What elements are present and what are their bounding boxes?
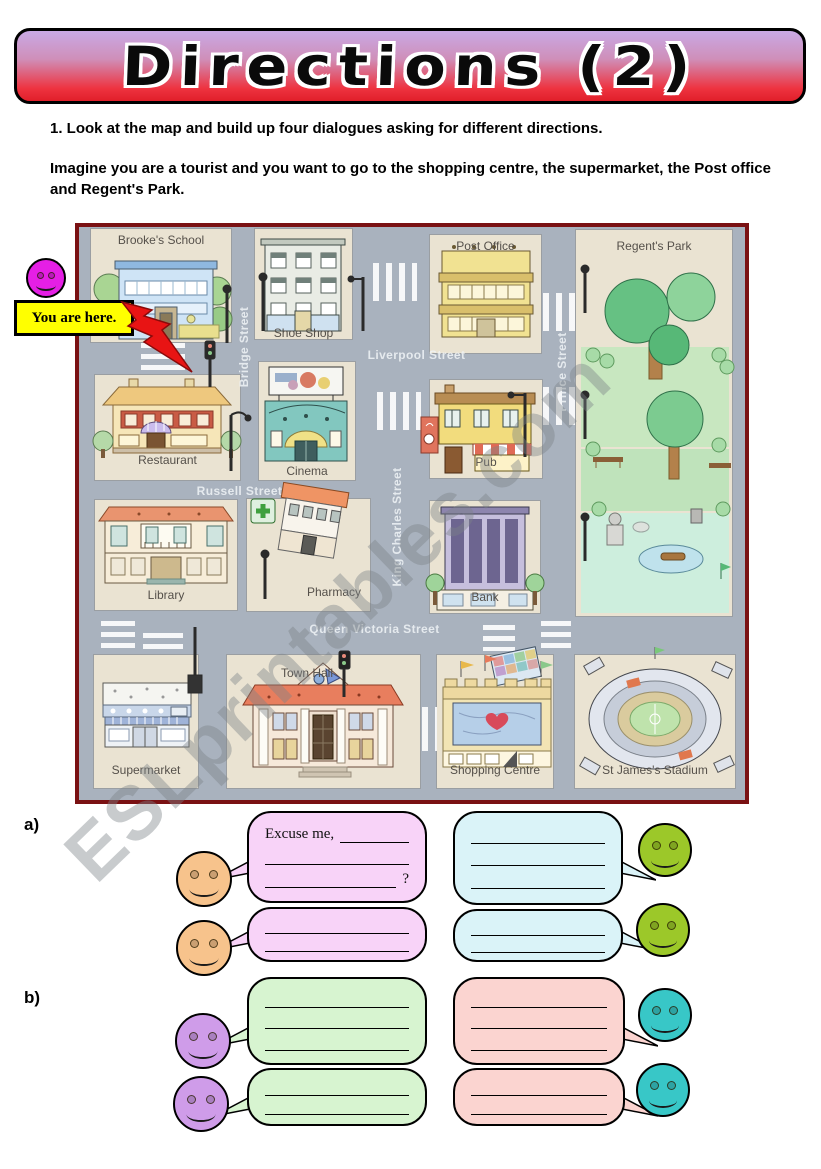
smiley-eye [187,1095,196,1104]
blank-line [265,1098,409,1115]
smiley-eye [669,1006,678,1015]
building-label-pharmacy: Pharmacy [279,585,389,599]
blank-line [471,827,605,844]
instruction-step1: 1. Look at the map and build up four dia… [50,118,782,139]
tourist-smiley-icon [173,1076,229,1132]
smiley-mouth [651,853,679,868]
local-smiley-icon [638,988,692,1042]
street-label-king-charles: King Charles Street [390,442,404,612]
smiley-eye [209,939,218,948]
building-label-shopping-centre: Shopping Centre [437,763,553,777]
tourist-smiley-icon [176,920,232,976]
building-label-pub: Pub [430,455,542,469]
local-smiley-icon [636,1063,690,1117]
crosswalk [422,707,437,751]
section-b-label: b) [24,988,40,1008]
you-are-here-label: You are here. [14,300,134,336]
smiley-eye [208,1032,217,1041]
smiley-eye [190,939,199,948]
speech-bubble [453,811,623,905]
page-title: Directions (2) [121,35,700,98]
you-are-here-arrow-icon [120,296,194,376]
street-label-russell: Russell Street [177,484,302,498]
bubble-text: ? [402,871,409,888]
speech-bubble [453,977,625,1065]
worksheet-page: Directions (2) 1. Look at the map and bu… [0,0,821,1169]
building-label-supermarket: Supermarket [94,763,198,777]
smiley-mouth [36,279,56,290]
speech-bubble [453,909,623,962]
blank-line [265,849,409,866]
tourist-smiley-icon [176,851,232,907]
you-are-here-smiley-icon [26,258,66,298]
speech-bubble [247,977,427,1065]
speech-bubble [247,907,427,962]
blank-line [471,991,607,1008]
street-label-bridge: Bridge Street [237,292,251,402]
blank-line [471,919,605,936]
blank-line [471,1098,607,1115]
smiley-mouth [649,933,677,948]
crosswalk [377,392,421,430]
smiley-eye [209,870,218,879]
blank-line [471,850,605,867]
smiley-eye [669,841,678,850]
crosswalk [541,621,571,649]
building-label-post-office: Post Office [430,239,541,253]
smiley-eye [37,272,44,279]
building-label-stadium: St James's Stadium [575,763,735,777]
crosswalk [143,633,183,651]
blank-line [265,991,409,1008]
smiley-eye [667,921,676,930]
smiley-eye [48,272,55,279]
map-block-park [576,230,732,616]
smiley-eye [206,1095,215,1104]
local-smiley-icon [638,823,692,877]
building-label-school: Brooke's School [91,233,231,247]
building-label-shoe-shop: Shoe Shop [255,326,352,340]
smiley-eye [650,921,659,930]
bubble-text: Excuse me, [265,826,334,843]
section-a-label: a) [24,815,39,835]
blank-line [471,1013,607,1030]
crosswalk [483,625,515,651]
map-block-shoe-shop [255,229,352,339]
building-label-bank: Bank [430,590,540,604]
smiley-mouth [188,1044,217,1060]
speech-bubble [247,1068,427,1126]
smiley-mouth [189,882,218,898]
instruction-intro: Imagine you are a tourist and you want t… [50,158,782,200]
building-label-cinema: Cinema [259,464,355,478]
crosswalk [101,621,135,649]
blank-line [265,871,396,888]
smiley-eye [667,1081,676,1090]
blank-line [471,1080,607,1097]
smiley-mouth [651,1018,679,1033]
smiley-eye [190,870,199,879]
blank-line [471,1034,607,1051]
blank-line [265,1080,409,1097]
building-label-town-hall: Town Hall [227,666,387,680]
blank-line [265,1034,409,1051]
smiley-eye [652,1006,661,1015]
blank-line [265,918,409,935]
street-label-prince: Prince Street [555,312,569,432]
speech-bubble [453,1068,625,1126]
local-smiley-icon [636,903,690,957]
building-label-restaurant: Restaurant [95,453,240,467]
blank-line [340,827,409,844]
building-label-park: Regent's Park [576,239,732,253]
smiley-mouth [186,1107,215,1123]
smiley-eye [650,1081,659,1090]
street-label-liverpool: Liverpool Street [359,348,474,362]
blank-line [265,935,409,952]
smiley-eye [189,1032,198,1041]
tourist-smiley-icon [175,1013,231,1069]
title-banner: Directions (2) [14,28,806,104]
blank-line [471,936,605,953]
building-label-library: Library [95,588,237,602]
blank-line [471,872,605,889]
smiley-eye [652,841,661,850]
blank-line [265,1013,409,1030]
smiley-mouth [649,1093,677,1108]
smiley-mouth [189,951,218,967]
street-label-queen-victoria: Queen Victoria Street [282,622,467,636]
map-block-cinema [259,362,355,480]
speech-bubble-question: Excuse me, ? [247,811,427,903]
crosswalk [373,263,417,301]
